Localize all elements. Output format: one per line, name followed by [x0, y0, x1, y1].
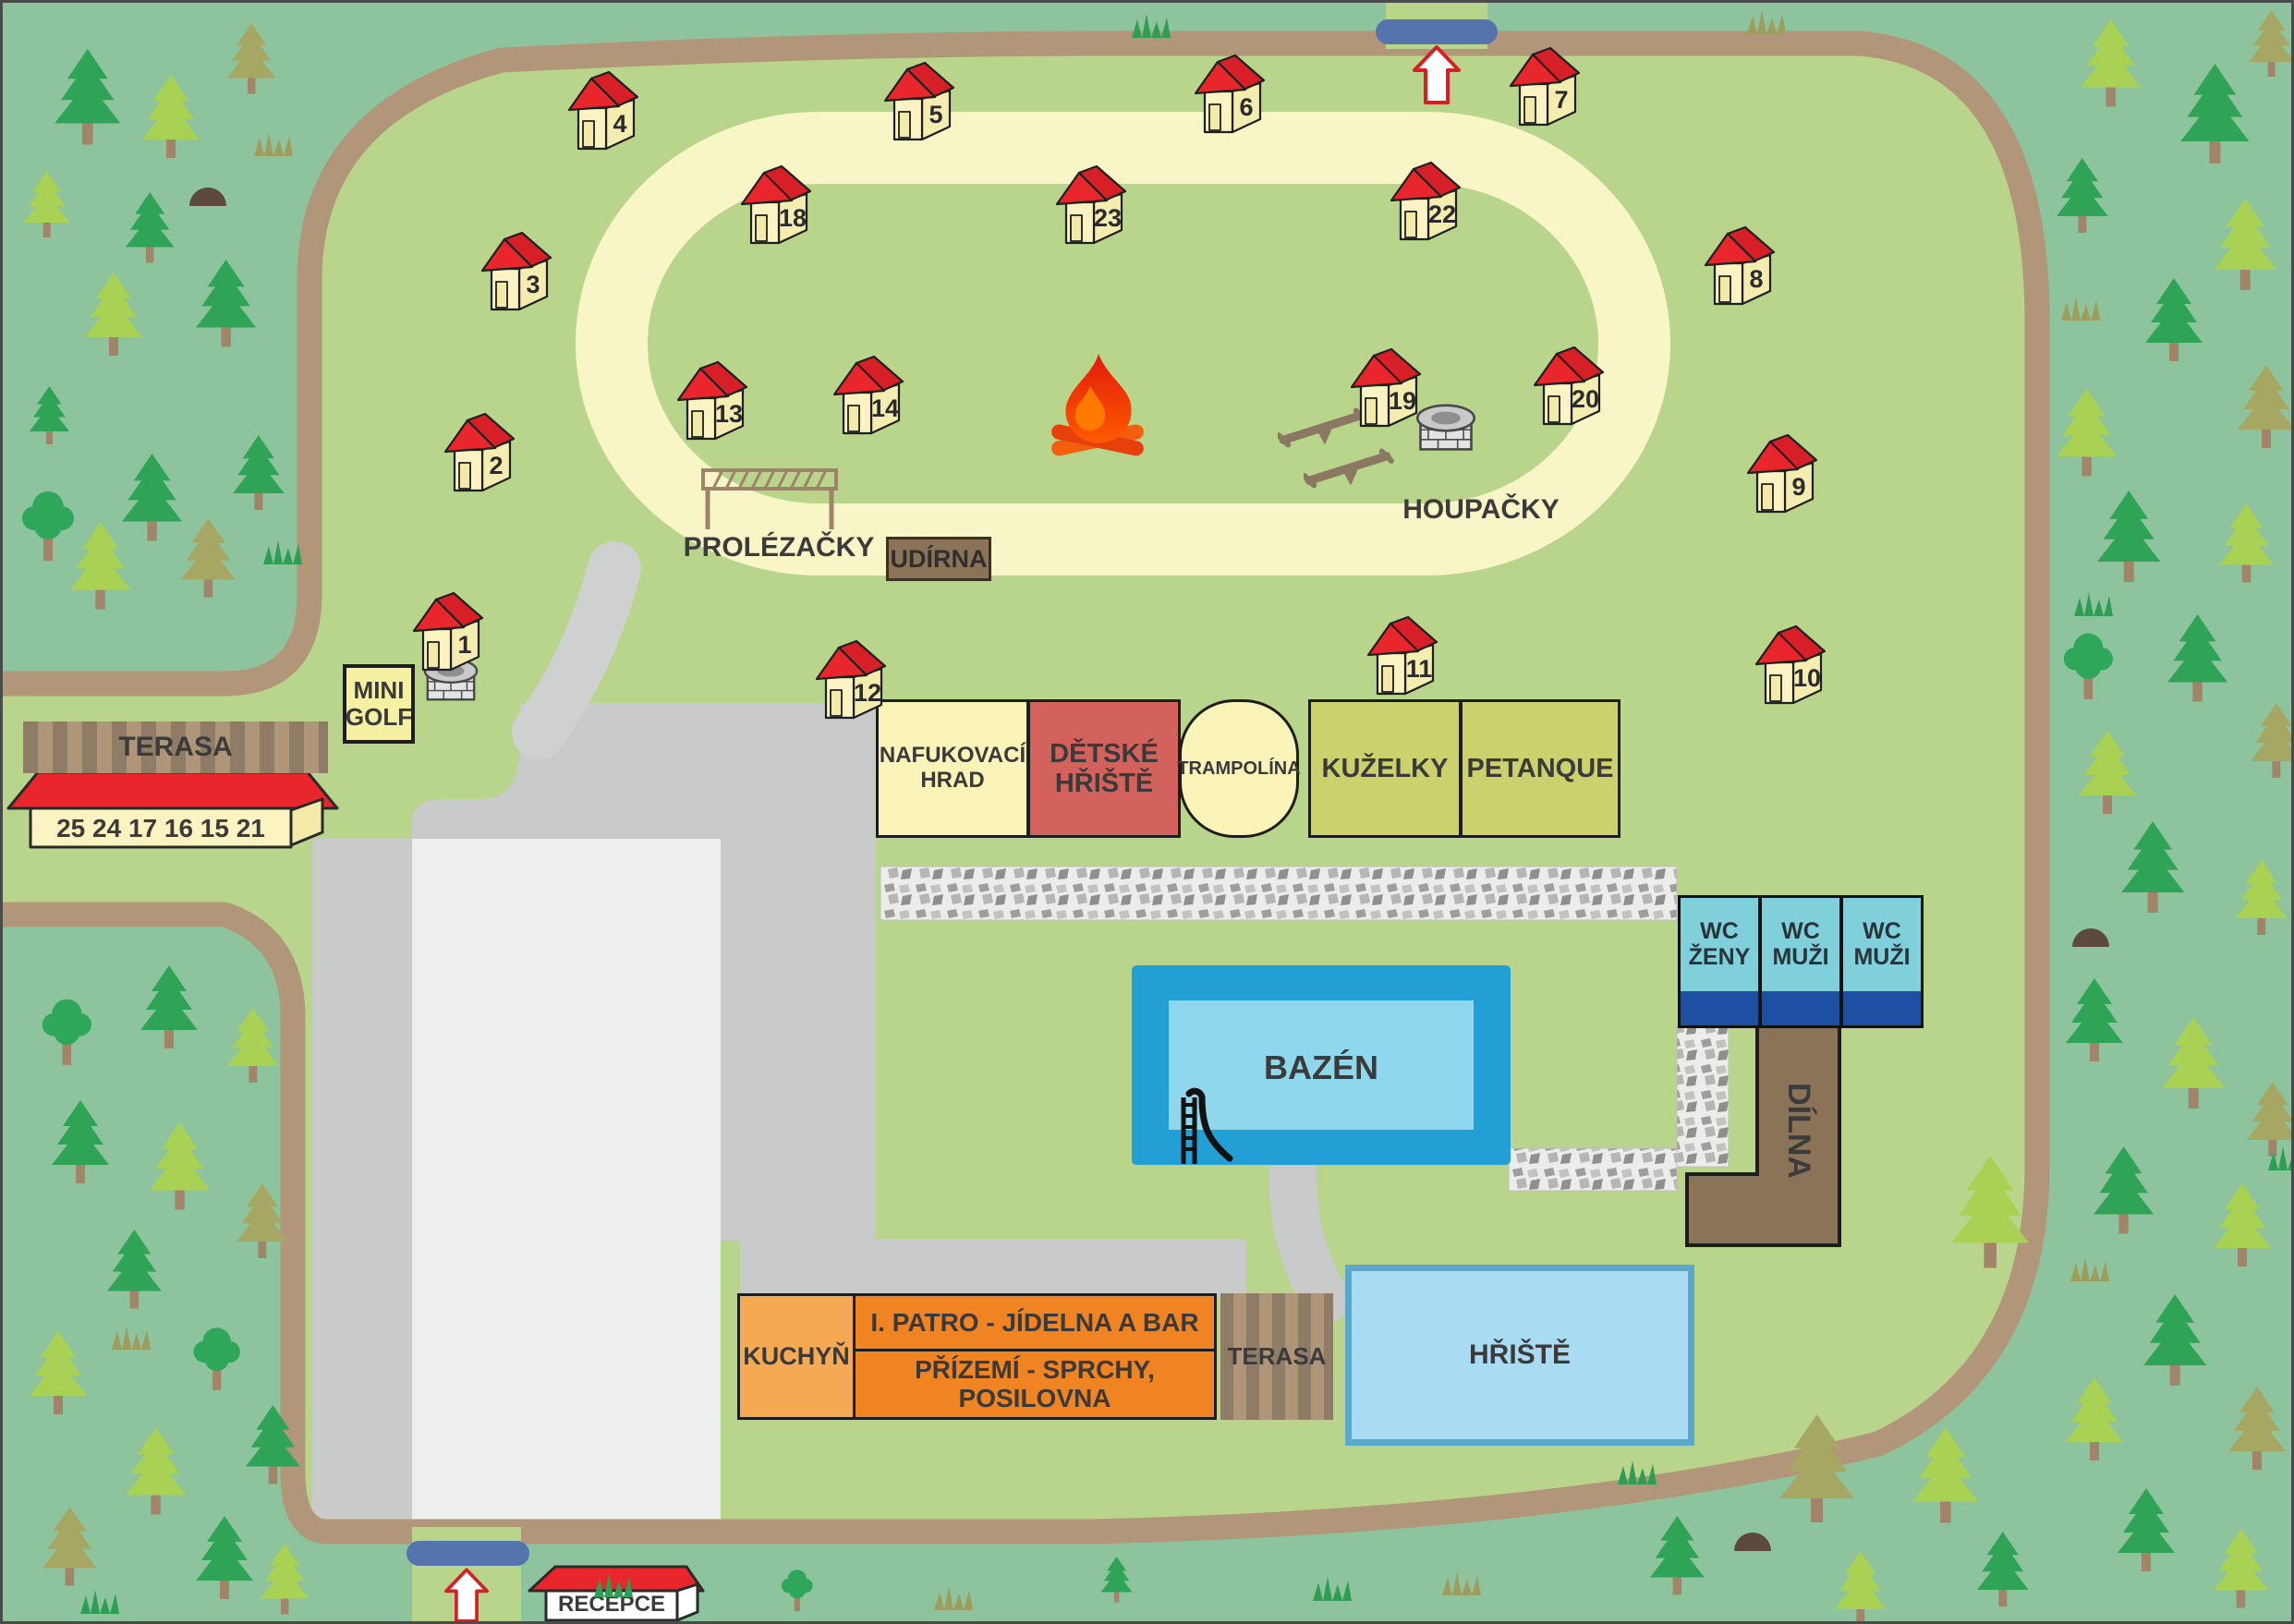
svg-text:1: 1	[457, 631, 471, 659]
cabin-13: 13	[674, 359, 749, 453]
svg-text:12: 12	[854, 679, 881, 707]
svg-text:9: 9	[1791, 473, 1805, 501]
cabin-12: 12	[812, 638, 888, 732]
svg-text:2: 2	[489, 452, 503, 479]
campsite-map: TERASA TERASA HŘIŠTĚ NAFUKOVACÍ HRAD DĚT…	[0, 0, 2294, 1624]
cabin-9: 9	[1743, 432, 1819, 526]
svg-text:23: 23	[1094, 204, 1122, 232]
svg-text:13: 13	[715, 400, 743, 428]
cabin-10: 10	[1752, 624, 1827, 717]
cabin-11: 11	[1364, 614, 1439, 708]
svg-text:19: 19	[1389, 387, 1416, 415]
cabin-8: 8	[1701, 224, 1777, 318]
svg-text:4: 4	[613, 110, 626, 138]
svg-text:10: 10	[1793, 664, 1821, 692]
cabin-20: 20	[1530, 345, 1606, 438]
cabin-2: 2	[441, 411, 516, 504]
svg-text:5: 5	[929, 101, 942, 128]
cabin-3: 3	[478, 230, 553, 323]
svg-text:3: 3	[526, 271, 540, 298]
cabin-1: 1	[409, 590, 485, 684]
cabin-4: 4	[564, 69, 640, 163]
cabin-5: 5	[880, 60, 956, 153]
cabin-18: 18	[737, 164, 813, 257]
svg-text:6: 6	[1239, 93, 1253, 121]
svg-text:20: 20	[1572, 385, 1599, 413]
cabin-6: 6	[1191, 53, 1267, 146]
cabin-14: 14	[830, 354, 905, 447]
svg-text:7: 7	[1554, 86, 1568, 114]
svg-text:11: 11	[1406, 655, 1433, 683]
svg-text:18: 18	[779, 204, 807, 232]
cabin-19: 19	[1347, 346, 1423, 440]
cabins-layer: 1 2 3	[3, 3, 2291, 1621]
svg-text:14: 14	[871, 394, 899, 422]
cabin-22: 22	[1387, 160, 1463, 253]
svg-text:22: 22	[1428, 200, 1456, 228]
svg-text:8: 8	[1749, 265, 1763, 293]
cabin-23: 23	[1052, 164, 1128, 257]
cabin-7: 7	[1506, 45, 1582, 139]
